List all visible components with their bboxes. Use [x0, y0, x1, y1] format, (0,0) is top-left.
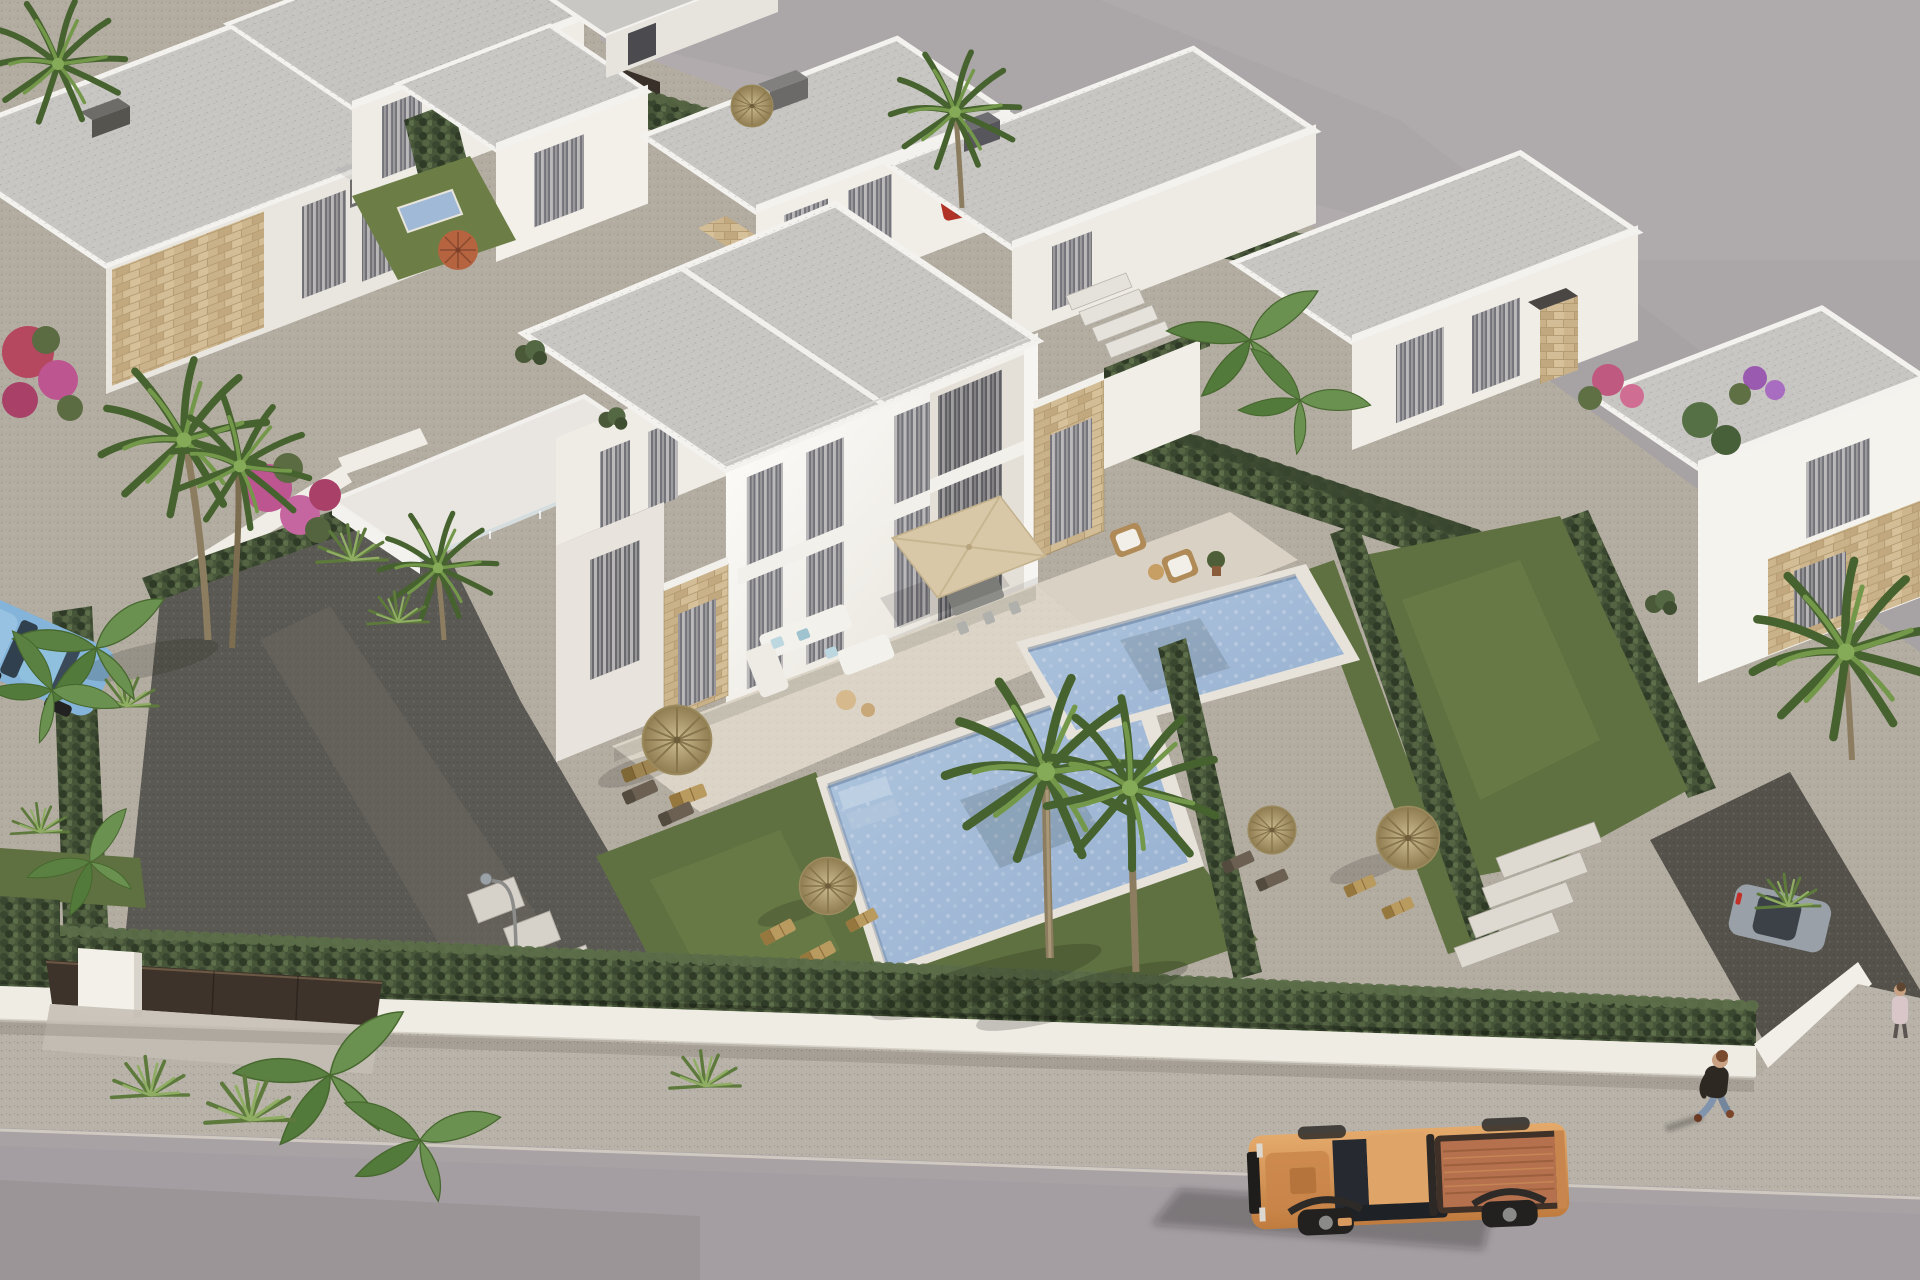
aerial-render: Aerial 3D architectural rendering of a m…	[0, 0, 1920, 1280]
render-canvas: Aerial 3D architectural rendering of a m…	[0, 0, 1920, 1280]
stone-block	[1034, 372, 1104, 560]
stone-pillar	[664, 556, 728, 722]
stone-chimney	[1540, 296, 1578, 384]
terracotta-parasol	[438, 230, 478, 270]
